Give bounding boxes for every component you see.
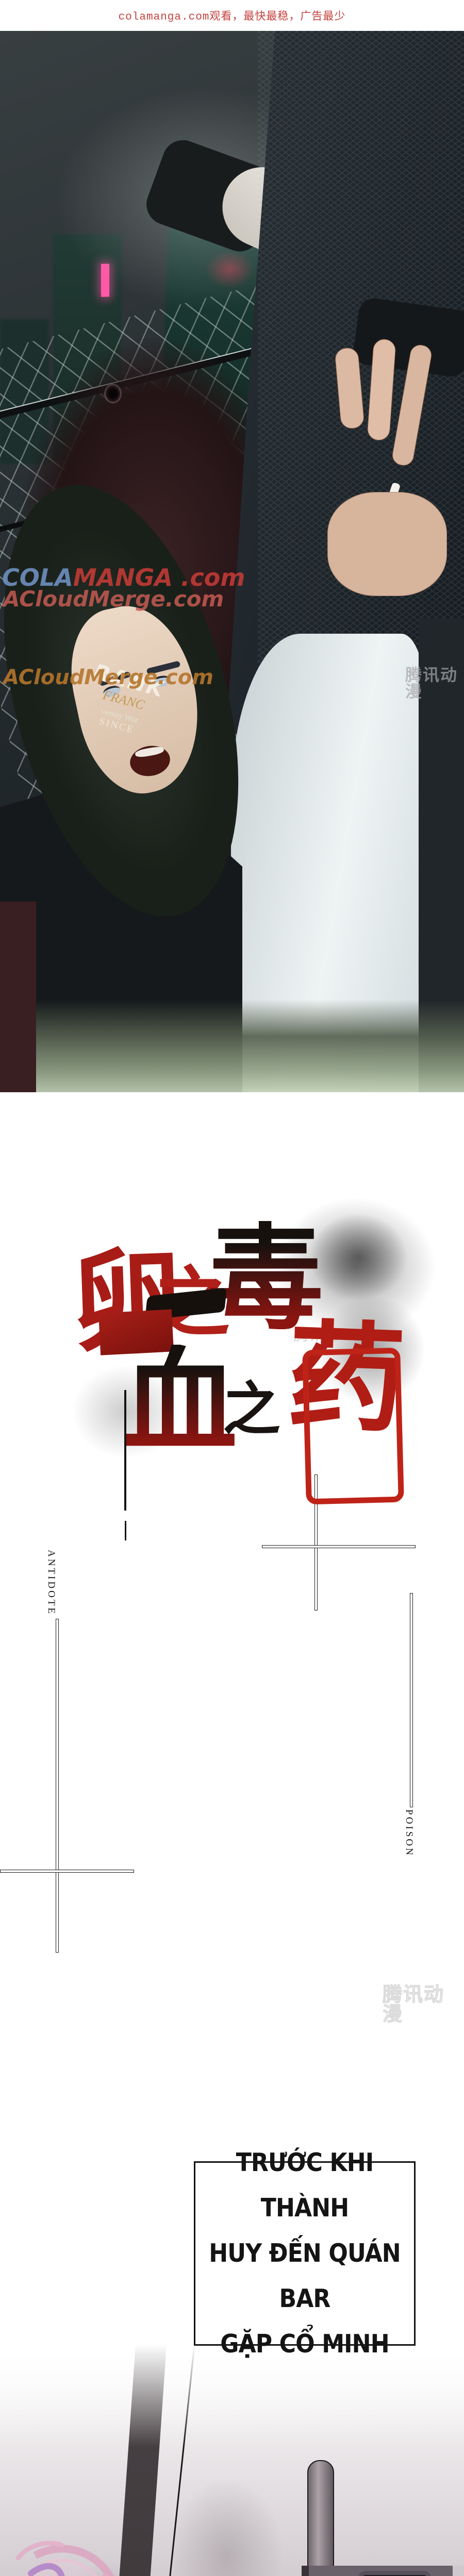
site-banner: colamanga.com观看，最快最稳，广告最少 <box>0 0 464 31</box>
hand-back <box>327 492 447 596</box>
pipe <box>307 2460 334 2576</box>
side-label-poison: POISON <box>403 1809 415 1869</box>
tencent-watermark: 腾讯动漫 <box>383 1985 464 2024</box>
title-vertical-line <box>124 1390 126 1511</box>
panel-night-scene: RANK FRANC versity Wor SINCE <box>0 31 464 1092</box>
left-cross-bar <box>0 1870 134 1873</box>
story-caption-box: TRƯỚC KHI THÀNH HUY ĐẾN QUÁN BAR GẶP CỔ … <box>194 2161 416 2346</box>
title-vertical-dash <box>125 1521 126 1540</box>
title-logo: 卵 之 毒 血 之 药 <box>0 1185 464 1546</box>
bullet-hole <box>106 385 120 402</box>
acloudmerge-watermark: ACloudMerge.com <box>3 588 224 610</box>
left-vertical-line <box>56 1619 59 1953</box>
title-char: 之 <box>223 1381 280 1438</box>
side-label-antidote: ANTIDOTE <box>45 1550 57 1622</box>
right-vertical-line <box>410 1593 413 1807</box>
acloudmerge-watermark: ACloudMerge.com <box>3 667 213 688</box>
site-banner-text: colamanga.com观看，最快最稳，广告最少 <box>119 8 346 23</box>
scanlation-stamp-art <box>0 2527 170 2576</box>
dark-slab <box>0 902 36 1092</box>
wall-right-strip <box>453 2566 464 2576</box>
story-caption-text: TRƯỚC KHI THÀNH HUY ĐẾN QUÁN BAR GẶP CỔ … <box>206 2140 403 2367</box>
floor-glow <box>0 999 464 1092</box>
seal-box <box>302 1348 404 1505</box>
tencent-watermark: 腾讯动漫 <box>405 667 464 700</box>
comic-page: colamanga.com观看，最快最稳，广告最少 <box>0 0 464 2576</box>
door-window <box>358 2571 431 2576</box>
wall-blotch <box>170 2478 284 2576</box>
title-char: 血 <box>123 1345 237 1459</box>
scanlation-stamp <box>0 2527 170 2576</box>
